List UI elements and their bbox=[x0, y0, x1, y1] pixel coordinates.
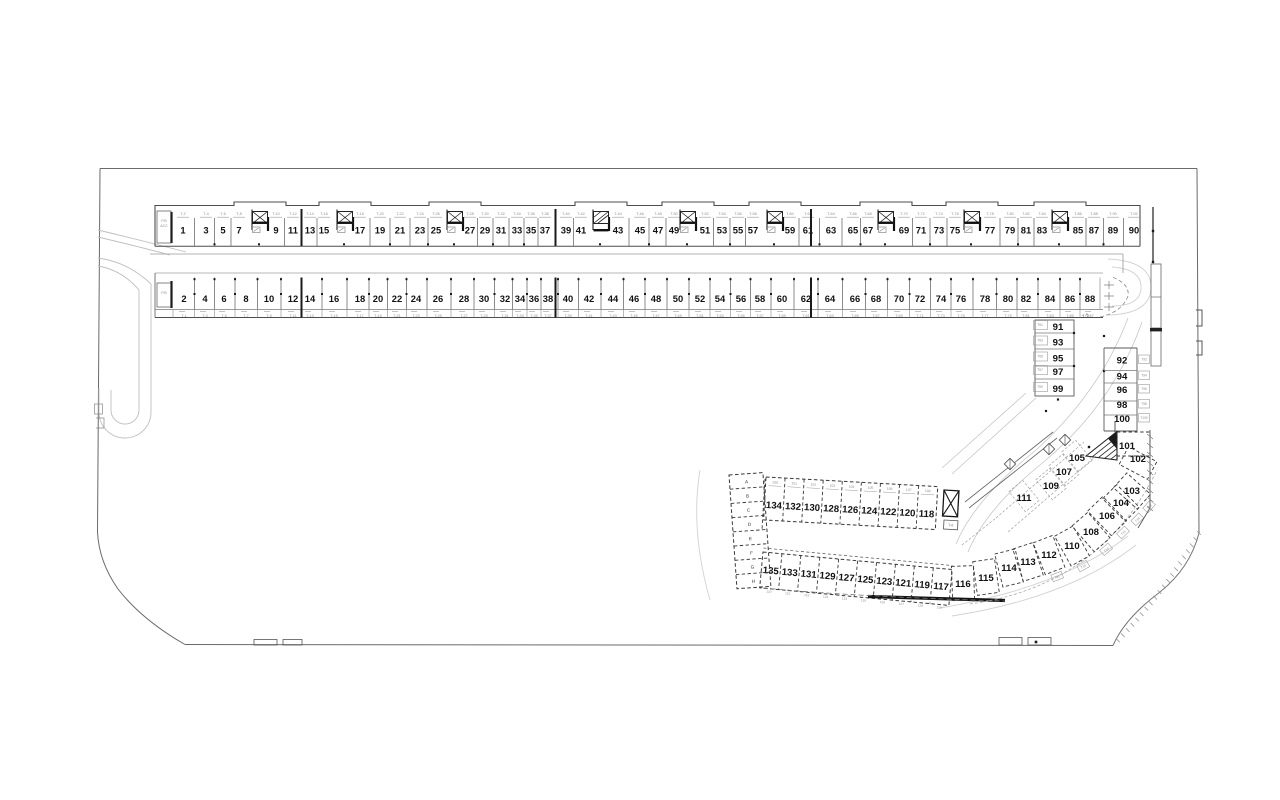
svg-text:T92: T92 bbox=[1141, 358, 1147, 362]
svg-text:T-14: T-14 bbox=[306, 212, 314, 216]
svg-text:52: 52 bbox=[695, 293, 705, 304]
svg-text:48: 48 bbox=[651, 293, 661, 304]
svg-text:75: 75 bbox=[950, 224, 960, 235]
svg-text:41: 41 bbox=[576, 224, 586, 235]
svg-text:80: 80 bbox=[1003, 293, 1013, 304]
svg-text:1: 1 bbox=[180, 224, 185, 235]
svg-text:67: 67 bbox=[863, 224, 873, 235]
svg-text:H: H bbox=[752, 579, 756, 584]
svg-text:129: 129 bbox=[936, 605, 942, 609]
svg-text:86: 86 bbox=[1065, 293, 1075, 304]
svg-text:114: 114 bbox=[1001, 563, 1017, 574]
svg-text:70: 70 bbox=[894, 293, 904, 304]
svg-text:121: 121 bbox=[895, 577, 913, 589]
svg-text:28: 28 bbox=[459, 293, 469, 304]
svg-text:122: 122 bbox=[804, 593, 810, 597]
svg-text:109: 109 bbox=[1043, 481, 1059, 492]
svg-text:85: 85 bbox=[1073, 224, 1083, 235]
svg-text:5: 5 bbox=[220, 224, 225, 235]
svg-text:17: 17 bbox=[355, 224, 365, 235]
svg-text:T-74: T-74 bbox=[935, 212, 943, 216]
svg-text:B: B bbox=[746, 493, 749, 498]
svg-text:91: 91 bbox=[1053, 322, 1064, 333]
svg-text:P.B: P.B bbox=[161, 219, 167, 223]
svg-text:51: 51 bbox=[700, 224, 710, 235]
svg-text:T-21: T-21 bbox=[393, 314, 401, 318]
svg-text:T-63: T-63 bbox=[826, 314, 834, 318]
svg-text:133: 133 bbox=[781, 567, 798, 579]
svg-text:T-64: T-64 bbox=[827, 212, 835, 216]
svg-text:64: 64 bbox=[825, 293, 836, 304]
svg-text:T-43: T-43 bbox=[609, 314, 617, 318]
svg-text:T-54: T-54 bbox=[718, 212, 726, 216]
svg-text:45: 45 bbox=[635, 224, 645, 235]
svg-text:99: 99 bbox=[1053, 384, 1064, 395]
svg-text:134: 134 bbox=[766, 500, 783, 512]
svg-text:T-47: T-47 bbox=[652, 314, 660, 318]
svg-text:69: 69 bbox=[899, 224, 909, 235]
svg-text:T-72: T-72 bbox=[917, 212, 925, 216]
svg-text:46: 46 bbox=[629, 293, 639, 304]
svg-text:43: 43 bbox=[613, 224, 623, 235]
svg-text:T-6: T-6 bbox=[948, 523, 953, 527]
svg-text:T-2: T-2 bbox=[180, 212, 186, 216]
svg-text:128: 128 bbox=[917, 604, 923, 608]
svg-text:T-48: T-48 bbox=[654, 212, 662, 216]
svg-text:T-38: T-38 bbox=[541, 212, 549, 216]
svg-text:39: 39 bbox=[561, 224, 571, 235]
svg-text:54: 54 bbox=[715, 293, 726, 304]
svg-text:T-16: T-16 bbox=[320, 212, 328, 216]
svg-text:T-58: T-58 bbox=[749, 212, 757, 216]
svg-text:120: 120 bbox=[766, 589, 772, 593]
svg-text:T-67: T-67 bbox=[872, 314, 880, 318]
svg-text:T-78: T-78 bbox=[986, 212, 994, 216]
svg-text:36: 36 bbox=[529, 293, 539, 304]
svg-text:111: 111 bbox=[1017, 493, 1033, 504]
svg-text:103: 103 bbox=[1124, 486, 1140, 497]
svg-text:T100: T100 bbox=[1140, 416, 1147, 420]
svg-text:T-10: T-10 bbox=[272, 212, 280, 216]
svg-text:T-41: T-41 bbox=[585, 314, 593, 318]
svg-text:126: 126 bbox=[880, 600, 886, 604]
svg-text:T-52: T-52 bbox=[701, 212, 709, 216]
svg-text:20: 20 bbox=[373, 293, 383, 304]
svg-text:6: 6 bbox=[221, 293, 226, 304]
svg-text:25: 25 bbox=[431, 224, 441, 235]
svg-text:135: 135 bbox=[762, 565, 780, 577]
svg-text:13: 13 bbox=[305, 224, 315, 235]
svg-text:E: E bbox=[749, 536, 752, 541]
svg-text:108: 108 bbox=[1083, 527, 1100, 538]
svg-text:33: 33 bbox=[512, 224, 522, 235]
svg-text:129: 129 bbox=[819, 570, 836, 582]
svg-text:115: 115 bbox=[978, 573, 994, 584]
svg-text:T-73: T-73 bbox=[937, 314, 945, 318]
svg-text:T-59: T-59 bbox=[778, 314, 786, 318]
svg-text:100: 100 bbox=[1114, 414, 1130, 425]
svg-text:T-82: T-82 bbox=[1022, 212, 1030, 216]
svg-text:122: 122 bbox=[880, 506, 897, 518]
svg-text:116: 116 bbox=[955, 579, 970, 590]
svg-text:102: 102 bbox=[810, 482, 816, 486]
svg-text:T-30: T-30 bbox=[481, 212, 489, 216]
svg-text:T-28: T-28 bbox=[466, 212, 474, 216]
svg-text:108: 108 bbox=[925, 489, 931, 493]
svg-text:125: 125 bbox=[861, 598, 867, 602]
svg-text:T-76: T-76 bbox=[951, 212, 959, 216]
svg-text:123: 123 bbox=[823, 595, 829, 599]
svg-text:26: 26 bbox=[433, 293, 443, 304]
svg-text:T-49: T-49 bbox=[674, 314, 682, 318]
svg-text:128: 128 bbox=[823, 503, 840, 515]
svg-text:56: 56 bbox=[736, 293, 746, 304]
svg-text:121: 121 bbox=[785, 591, 791, 595]
svg-text:3: 3 bbox=[203, 224, 208, 235]
svg-text:T-17: T-17 bbox=[356, 314, 364, 318]
svg-text:44: 44 bbox=[608, 293, 619, 304]
svg-text:50: 50 bbox=[673, 293, 683, 304]
svg-text:60: 60 bbox=[777, 293, 787, 304]
svg-text:T-66: T-66 bbox=[849, 212, 857, 216]
svg-text:T-79: T-79 bbox=[1004, 314, 1012, 318]
svg-text:74: 74 bbox=[936, 293, 947, 304]
svg-text:T-45: T-45 bbox=[630, 314, 638, 318]
svg-text:15: 15 bbox=[319, 224, 329, 235]
svg-text:T94: T94 bbox=[1141, 374, 1147, 378]
svg-text:T-26: T-26 bbox=[432, 212, 440, 216]
svg-text:79: 79 bbox=[1005, 224, 1015, 235]
svg-text:106: 106 bbox=[887, 487, 893, 491]
svg-text:P.B: P.B bbox=[161, 291, 167, 295]
svg-text:T-7: T-7 bbox=[243, 314, 249, 318]
svg-text:37: 37 bbox=[540, 224, 550, 235]
svg-text:29: 29 bbox=[480, 224, 490, 235]
svg-text:71: 71 bbox=[916, 224, 926, 235]
svg-text:98: 98 bbox=[1117, 400, 1128, 411]
svg-text:76: 76 bbox=[956, 293, 966, 304]
svg-text:7: 7 bbox=[236, 224, 241, 235]
svg-text:T-15: T-15 bbox=[330, 314, 338, 318]
svg-text:T-35: T-35 bbox=[530, 314, 538, 318]
svg-text:T93: T93 bbox=[1037, 339, 1043, 343]
svg-text:16: 16 bbox=[329, 293, 339, 304]
svg-text:T-9: T-9 bbox=[266, 314, 272, 318]
svg-text:T-70: T-70 bbox=[900, 212, 908, 216]
svg-text:T-8: T-8 bbox=[236, 212, 242, 216]
svg-text:T-27: T-27 bbox=[460, 314, 468, 318]
svg-text:94: 94 bbox=[1117, 371, 1128, 382]
svg-text:127: 127 bbox=[838, 572, 855, 584]
svg-text:68: 68 bbox=[871, 293, 881, 304]
svg-text:T-39: T-39 bbox=[564, 314, 572, 318]
svg-text:87: 87 bbox=[1089, 224, 1099, 235]
svg-text:T-5: T-5 bbox=[221, 314, 227, 318]
svg-text:96: 96 bbox=[1117, 385, 1128, 396]
svg-text:T-1: T-1 bbox=[181, 314, 187, 318]
svg-text:T98: T98 bbox=[1141, 402, 1147, 406]
svg-text:T-88: T-88 bbox=[1090, 212, 1098, 216]
svg-text:112: 112 bbox=[1041, 550, 1056, 561]
svg-text:T-31: T-31 bbox=[501, 314, 509, 318]
svg-text:T-53: T-53 bbox=[716, 314, 724, 318]
svg-text:T-40: T-40 bbox=[562, 212, 570, 216]
svg-text:22: 22 bbox=[392, 293, 402, 304]
svg-text:57: 57 bbox=[748, 224, 758, 235]
svg-text:77: 77 bbox=[985, 224, 995, 235]
svg-text:123: 123 bbox=[876, 576, 893, 588]
svg-text:T-42: T-42 bbox=[577, 212, 585, 216]
svg-text:82: 82 bbox=[1021, 293, 1031, 304]
svg-text:42: 42 bbox=[584, 293, 594, 304]
svg-text:120: 120 bbox=[899, 508, 916, 520]
svg-text:T-44: T-44 bbox=[614, 212, 622, 216]
svg-text:132: 132 bbox=[785, 501, 802, 513]
svg-text:95: 95 bbox=[1053, 353, 1064, 364]
svg-text:58: 58 bbox=[755, 293, 765, 304]
svg-text:T-51: T-51 bbox=[696, 314, 704, 318]
svg-text:126: 126 bbox=[842, 504, 859, 516]
svg-text:T-56: T-56 bbox=[734, 212, 742, 216]
svg-text:62: 62 bbox=[801, 293, 811, 304]
svg-text:124: 124 bbox=[861, 505, 878, 517]
svg-text:T99: T99 bbox=[1037, 385, 1043, 389]
svg-text:89: 89 bbox=[1108, 224, 1118, 235]
svg-text:18: 18 bbox=[355, 293, 365, 304]
svg-text:34: 34 bbox=[515, 293, 526, 304]
svg-text:T-13: T-13 bbox=[306, 314, 314, 318]
svg-text:30: 30 bbox=[479, 293, 489, 304]
svg-text:T-11: T-11 bbox=[289, 314, 296, 318]
svg-text:127: 127 bbox=[898, 602, 904, 606]
svg-text:118: 118 bbox=[918, 509, 935, 521]
svg-text:101: 101 bbox=[1119, 441, 1136, 452]
svg-text:T97: T97 bbox=[1037, 368, 1043, 372]
svg-text:88: 88 bbox=[1085, 293, 1095, 304]
svg-text:131: 131 bbox=[800, 569, 818, 581]
svg-text:4: 4 bbox=[202, 293, 208, 304]
svg-text:T-75: T-75 bbox=[957, 314, 965, 318]
svg-text:T-61: T-61 bbox=[802, 314, 810, 318]
svg-text:49: 49 bbox=[669, 224, 679, 235]
svg-text:T-29: T-29 bbox=[480, 314, 488, 318]
svg-text:T-81: T-81 bbox=[1022, 314, 1030, 318]
svg-text:T-46: T-46 bbox=[636, 212, 644, 216]
svg-text:130: 130 bbox=[804, 502, 821, 514]
svg-text:T-85: T-85 bbox=[1066, 314, 1074, 318]
svg-text:124: 124 bbox=[842, 596, 848, 600]
svg-text:T-20: T-20 bbox=[376, 212, 384, 216]
svg-text:40: 40 bbox=[563, 293, 573, 304]
svg-text:93: 93 bbox=[1053, 337, 1064, 348]
svg-text:24: 24 bbox=[411, 293, 422, 304]
svg-text:9: 9 bbox=[273, 224, 278, 235]
svg-text:T-55: T-55 bbox=[737, 314, 745, 318]
svg-text:113: 113 bbox=[1020, 557, 1035, 568]
svg-text:12: 12 bbox=[288, 293, 298, 304]
svg-text:T96: T96 bbox=[1141, 387, 1147, 391]
svg-text:83: 83 bbox=[1037, 224, 1047, 235]
svg-text:100: 100 bbox=[772, 480, 778, 484]
svg-text:T-77: T-77 bbox=[981, 314, 989, 318]
svg-text:125: 125 bbox=[857, 574, 875, 586]
svg-text:F: F bbox=[750, 550, 753, 555]
svg-text:21: 21 bbox=[395, 224, 405, 235]
svg-text:73: 73 bbox=[934, 224, 944, 235]
svg-text:8: 8 bbox=[243, 293, 248, 304]
svg-text:T-68: T-68 bbox=[864, 212, 872, 216]
svg-text:2: 2 bbox=[181, 293, 186, 304]
svg-text:107: 107 bbox=[906, 488, 912, 492]
svg-text:97: 97 bbox=[1053, 367, 1064, 378]
svg-text:47: 47 bbox=[653, 224, 663, 235]
svg-text:65: 65 bbox=[848, 224, 858, 235]
svg-text:T-92: T-92 bbox=[1130, 212, 1138, 216]
svg-text:T-37: T-37 bbox=[544, 314, 552, 318]
svg-text:66: 66 bbox=[850, 293, 860, 304]
svg-text:T-86: T-86 bbox=[1074, 212, 1082, 216]
svg-text:27: 27 bbox=[465, 224, 475, 235]
svg-text:110: 110 bbox=[1064, 541, 1079, 552]
svg-text:72: 72 bbox=[915, 293, 925, 304]
svg-text:T-71: T-71 bbox=[916, 314, 924, 318]
svg-text:T-19: T-19 bbox=[374, 314, 382, 318]
svg-text:T-80: T-80 bbox=[1006, 212, 1014, 216]
svg-text:107: 107 bbox=[1056, 467, 1072, 478]
svg-text:103: 103 bbox=[829, 484, 835, 488]
svg-text:T-3: T-3 bbox=[202, 314, 208, 318]
svg-text:106: 106 bbox=[1099, 511, 1115, 522]
svg-text:T-69: T-69 bbox=[895, 314, 903, 318]
svg-text:119: 119 bbox=[914, 579, 930, 591]
svg-text:ACC: ACC bbox=[160, 224, 168, 228]
svg-text:55: 55 bbox=[733, 224, 743, 235]
svg-text:104: 104 bbox=[1113, 498, 1130, 509]
svg-text:104: 104 bbox=[849, 485, 855, 489]
svg-text:53: 53 bbox=[717, 224, 727, 235]
svg-text:T-34: T-34 bbox=[513, 212, 521, 216]
svg-text:84: 84 bbox=[1045, 293, 1056, 304]
svg-text:31: 31 bbox=[496, 224, 506, 235]
svg-text:T-22: T-22 bbox=[396, 212, 404, 216]
svg-text:101: 101 bbox=[791, 481, 797, 485]
svg-text:78: 78 bbox=[980, 293, 990, 304]
svg-text:T-24: T-24 bbox=[416, 212, 424, 216]
svg-text:10: 10 bbox=[264, 293, 274, 304]
svg-text:T-60: T-60 bbox=[786, 212, 794, 216]
svg-text:T-12: T-12 bbox=[289, 212, 297, 216]
svg-text:38: 38 bbox=[543, 293, 553, 304]
svg-text:14: 14 bbox=[305, 293, 316, 304]
svg-text:T-90: T-90 bbox=[1109, 212, 1117, 216]
svg-text:32: 32 bbox=[500, 293, 510, 304]
svg-text:59: 59 bbox=[785, 224, 795, 235]
svg-text:T-84: T-84 bbox=[1038, 212, 1046, 216]
svg-text:35: 35 bbox=[526, 224, 536, 235]
svg-text:T-23: T-23 bbox=[412, 314, 420, 318]
svg-text:T-6: T-6 bbox=[220, 212, 226, 216]
svg-text:T-36: T-36 bbox=[527, 212, 535, 216]
svg-text:63: 63 bbox=[826, 224, 836, 235]
svg-text:T95: T95 bbox=[1037, 355, 1043, 359]
svg-text:T-18: T-18 bbox=[356, 212, 364, 216]
svg-text:T-32: T-32 bbox=[497, 212, 505, 216]
svg-text:105: 105 bbox=[1069, 453, 1086, 464]
svg-text:90: 90 bbox=[1129, 224, 1139, 235]
svg-text:19: 19 bbox=[375, 224, 385, 235]
svg-text:T-50: T-50 bbox=[670, 212, 678, 216]
svg-text:11: 11 bbox=[288, 224, 298, 235]
svg-text:23: 23 bbox=[415, 224, 425, 235]
svg-text:T-25: T-25 bbox=[434, 314, 442, 318]
svg-text:T-33: T-33 bbox=[516, 314, 524, 318]
svg-text:117: 117 bbox=[933, 581, 949, 593]
svg-text:T-65: T-65 bbox=[851, 314, 859, 318]
svg-text:T-57: T-57 bbox=[756, 314, 764, 318]
svg-text:T-4: T-4 bbox=[203, 212, 209, 216]
svg-text:102: 102 bbox=[1130, 454, 1146, 465]
svg-text:81: 81 bbox=[1021, 224, 1031, 235]
svg-text:105: 105 bbox=[868, 486, 874, 490]
svg-text:T-83: T-83 bbox=[1046, 314, 1054, 318]
svg-text:T91: T91 bbox=[1037, 323, 1043, 327]
svg-text:92: 92 bbox=[1117, 355, 1128, 366]
